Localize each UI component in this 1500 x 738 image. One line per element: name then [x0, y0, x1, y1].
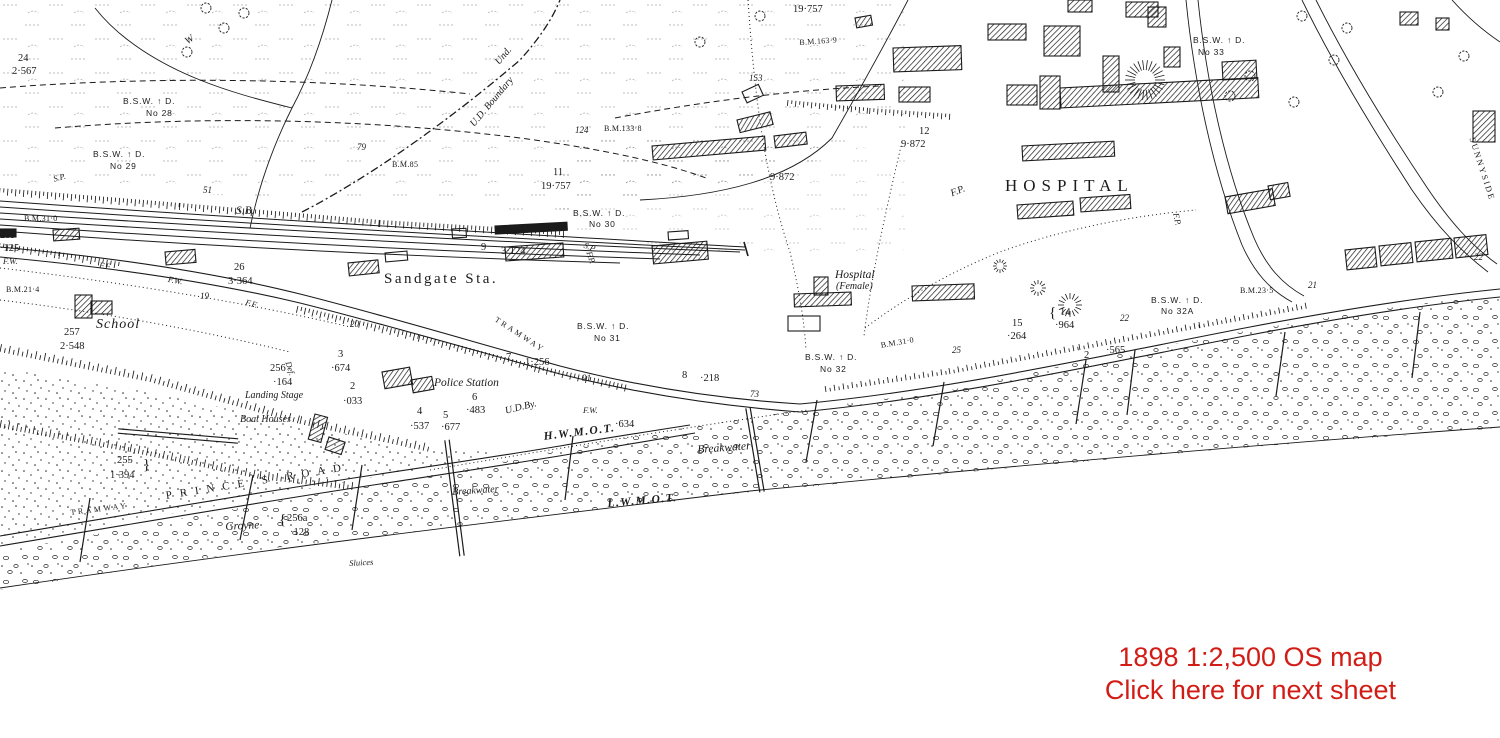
- map-label: 124: [575, 125, 589, 135]
- building: [1022, 141, 1115, 161]
- map-label: 255: [117, 455, 133, 466]
- building: [385, 251, 408, 262]
- next-sheet-link[interactable]: Click here for next sheet: [1078, 674, 1423, 707]
- map-label: }: [143, 457, 150, 474]
- tree-symbol: [1342, 23, 1352, 33]
- map-label: No 32: [820, 364, 847, 374]
- map-label: Landing Stage: [245, 390, 303, 401]
- map-label: B.S.W. ↑ D.: [123, 96, 175, 106]
- map-drawing: [0, 0, 1500, 738]
- map-label: 5: [443, 410, 448, 421]
- map-label: B.M.21·4: [6, 285, 40, 294]
- map-label: 15: [1012, 318, 1023, 329]
- map-label: B.S.W. ↑ D.: [573, 208, 625, 218]
- map-label: ·125: [0, 243, 19, 254]
- map-label: 73: [750, 389, 759, 399]
- map-label: B.M.23·5: [1240, 286, 1274, 295]
- map-label: No 29: [110, 161, 137, 171]
- map-label: 19·757: [793, 4, 823, 15]
- map-label: 19: [200, 291, 209, 301]
- map-label: No 33: [1198, 47, 1225, 57]
- map-label: 2: [350, 381, 355, 392]
- map-label: B.M.133·8: [604, 124, 642, 133]
- tree-symbol: [1297, 11, 1307, 21]
- building: [1044, 26, 1080, 56]
- map-label: B.S.W. ↑ D.: [1193, 35, 1245, 45]
- map-label: 9: [481, 242, 486, 253]
- building: [893, 46, 962, 72]
- building: [988, 24, 1026, 40]
- map-label: 3·124: [501, 246, 526, 257]
- map-label: 3: [338, 349, 343, 360]
- map-label: Hospital: [835, 269, 875, 281]
- map-label: 91: [582, 373, 591, 383]
- map-label: HOSPITAL: [1005, 176, 1134, 196]
- map-label: ·674: [331, 363, 350, 374]
- building: [1164, 47, 1180, 67]
- map-label: B.S.W. ↑ D.: [1151, 295, 1203, 305]
- map-label: 26: [234, 262, 245, 273]
- map-label: 256a: [287, 513, 307, 524]
- building: [836, 84, 884, 101]
- map-label: 2·567: [12, 66, 37, 77]
- building: [382, 367, 413, 389]
- map-label: 2·548: [60, 341, 85, 352]
- building: [75, 295, 92, 318]
- map-label: S.B.: [236, 205, 255, 217]
- building: [1017, 201, 1074, 219]
- map-label: 6: [472, 392, 477, 403]
- tree-symbol: [1289, 97, 1299, 107]
- map-label: 20: [350, 319, 359, 329]
- building: [1103, 56, 1119, 92]
- map-label: Police Station: [434, 377, 499, 389]
- building: [1148, 7, 1166, 27]
- building: [899, 87, 930, 102]
- building: [348, 260, 379, 276]
- building: [91, 301, 112, 314]
- map-label: Groyne: [225, 519, 260, 533]
- building: [1379, 243, 1413, 266]
- map-label: F.W.: [583, 405, 598, 415]
- map-label: {: [279, 512, 286, 529]
- building: [1068, 0, 1092, 12]
- map-label: 51: [203, 185, 212, 195]
- map-label: No 32A: [1161, 306, 1194, 316]
- building: [1040, 76, 1060, 109]
- map-label: No 30: [589, 219, 616, 229]
- map-label: ·128: [290, 527, 309, 538]
- building: [1415, 238, 1453, 262]
- map-label: F.W.: [3, 256, 18, 266]
- building: [1007, 85, 1037, 105]
- building: [165, 249, 196, 265]
- map-label: 1·394: [110, 470, 135, 481]
- map-label: 7: [506, 352, 511, 363]
- map-label: 14: [1060, 307, 1071, 318]
- map-label: B.S.W. ↑ D.: [93, 149, 145, 159]
- map-label: 22: [1474, 252, 1483, 262]
- map-label: 25: [952, 345, 961, 355]
- building: [1225, 189, 1275, 214]
- map-label: B.S.W. ↑ D.: [577, 321, 629, 331]
- map-label: School: [96, 317, 140, 333]
- building: [855, 15, 872, 28]
- map-label: 3·364: [228, 276, 253, 287]
- map-label: Sluices: [349, 557, 374, 568]
- map-label: 1·256: [525, 357, 550, 368]
- tree-symbol: [1329, 55, 1339, 65]
- map-sheet: 19·757B.M.163·9153124B.M.133·81119·757B.…: [0, 0, 1500, 738]
- building: [1080, 195, 1131, 212]
- tree-symbol: [1433, 87, 1443, 97]
- map-label: B.M.85: [392, 160, 418, 169]
- map-label: 2: [1084, 350, 1089, 361]
- building: [1436, 18, 1449, 30]
- caption-title: 1898 1:2,500 OS map: [1078, 641, 1423, 674]
- map-label: 22: [1120, 313, 1129, 323]
- map-label: No 31: [594, 333, 621, 343]
- map-label: 4: [417, 406, 422, 417]
- building: [1268, 183, 1290, 200]
- map-label: Sandgate Sta.: [384, 271, 498, 288]
- building: [1345, 247, 1377, 270]
- map-label: B.S.W. ↑ D.: [805, 352, 857, 362]
- map-label: B.M.31·0: [24, 214, 58, 223]
- map-label: ·483: [466, 405, 485, 416]
- map-label: No 28: [146, 108, 173, 118]
- map-label: ·164: [273, 377, 292, 388]
- building: [912, 284, 974, 301]
- map-label: ·264: [1007, 331, 1026, 342]
- map-label: 8: [682, 370, 687, 381]
- building: [1222, 60, 1257, 80]
- map-caption: 1898 1:2,500 OS map Click here for next …: [1078, 641, 1423, 707]
- map-label: F.F.: [99, 260, 113, 272]
- map-label: (Female): [836, 281, 873, 292]
- building: [814, 277, 828, 295]
- map-label: 24: [18, 53, 29, 64]
- map-label: 12: [919, 126, 930, 137]
- building: [1400, 12, 1418, 25]
- map-label: Boat Houses: [240, 414, 291, 425]
- map-label: 9·872: [770, 172, 795, 183]
- map-label: 79: [357, 142, 366, 152]
- map-label: 11: [553, 167, 563, 178]
- map-label: ·677: [441, 422, 460, 433]
- map-label: 257: [64, 327, 80, 338]
- map-label: ·634: [615, 419, 634, 430]
- building: [788, 316, 820, 331]
- map-label: 259: [0, 230, 16, 241]
- map-label: ·565: [1106, 345, 1125, 356]
- map-label: ·537: [410, 421, 429, 432]
- map-label: 21: [1308, 280, 1317, 290]
- map-label: 19·757: [541, 181, 571, 192]
- map-label: ·964: [1055, 320, 1074, 331]
- map-label: 9·872: [901, 139, 926, 150]
- building: [53, 228, 80, 241]
- map-label: 153: [749, 73, 763, 83]
- tree-symbol: [1459, 51, 1469, 61]
- map-label: ·218: [700, 373, 719, 384]
- building: [411, 376, 434, 392]
- map-label: ·033: [343, 396, 362, 407]
